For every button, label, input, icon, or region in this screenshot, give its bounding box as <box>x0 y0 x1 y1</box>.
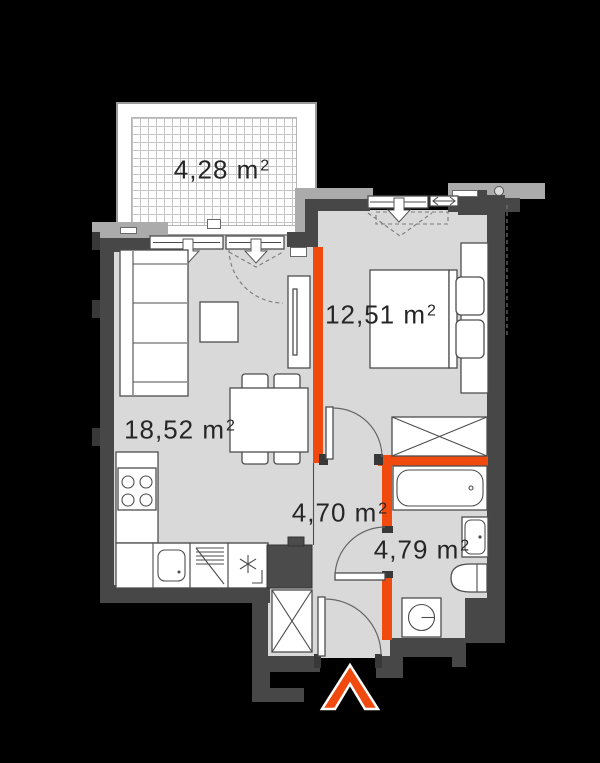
coffee-table <box>200 302 238 342</box>
tv-cabinet <box>288 276 310 368</box>
door-swing <box>325 599 381 655</box>
dining-table <box>230 388 308 452</box>
wardrobe-hallway <box>272 590 312 652</box>
room-label-bedroom: 12,51 m2 <box>325 300 437 331</box>
room-label-balcony: 4,28 m2 <box>174 155 270 186</box>
bathtub <box>393 466 487 510</box>
room-label-living: 18,52 m2 <box>124 415 236 446</box>
kitchen-counter <box>116 452 268 588</box>
toilet <box>451 564 487 592</box>
room-label-bathroom: 4,79 m2 <box>374 535 470 566</box>
entrance-door <box>318 597 381 656</box>
bedroom-door <box>326 407 382 459</box>
headboard-console <box>461 243 488 393</box>
pillow <box>456 277 484 315</box>
radiator <box>376 212 448 224</box>
plan-symbols-layer <box>0 0 600 763</box>
column-detail <box>495 187 504 196</box>
dining-set <box>230 374 308 464</box>
shaft <box>267 537 312 588</box>
room-label-hallway: 4,70 m2 <box>292 498 388 529</box>
cooktop <box>118 468 156 510</box>
sofa <box>120 250 188 396</box>
bedroom-window <box>368 187 504 237</box>
pillow <box>456 320 484 358</box>
wardrobe-bedroom <box>392 417 487 456</box>
entrance-arrow-icon <box>322 665 378 709</box>
floor-plan: 18,52 m2 12,51 m2 4,28 m2 4,70 m2 4,79 m… <box>0 0 600 763</box>
washing-machine <box>402 598 441 637</box>
door-swing <box>333 408 382 457</box>
